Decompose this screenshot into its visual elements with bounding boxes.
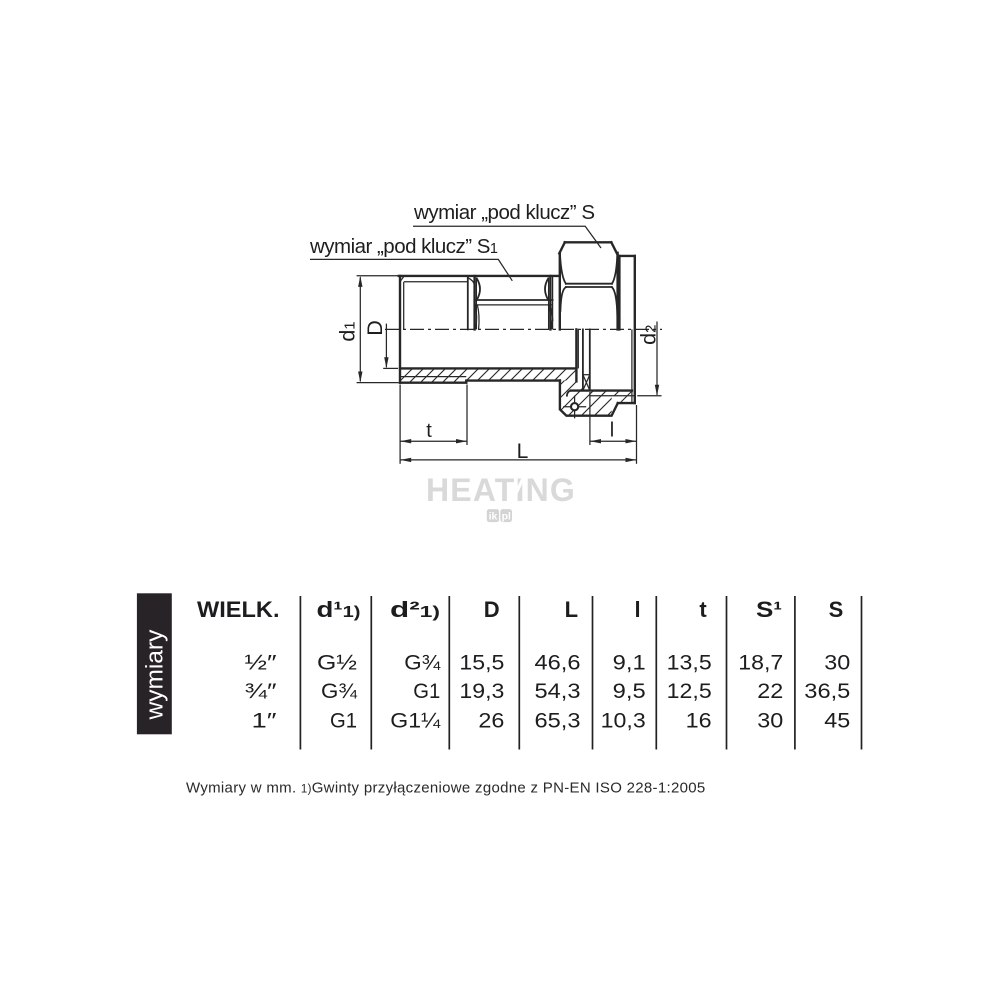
svg-text:G¾: G¾ — [321, 680, 358, 703]
svg-text:¾″: ¾″ — [245, 680, 278, 703]
svg-text:pl: pl — [502, 510, 511, 522]
svg-text:46,6: 46,6 — [535, 651, 581, 674]
svg-text:Wymiary w mm. 1)Gwinty przyłąc: Wymiary w mm. 1)Gwinty przyłączeniowe zg… — [186, 780, 706, 797]
svg-text:10,3: 10,3 — [601, 709, 646, 732]
svg-text:G1¼: G1¼ — [390, 709, 441, 732]
svg-text:HEATING: HEATING — [426, 472, 576, 508]
svg-text:18,7: 18,7 — [738, 651, 783, 674]
svg-text:G½: G½ — [317, 651, 357, 674]
svg-text:l: l — [634, 597, 640, 622]
svg-text:l: l — [610, 420, 614, 442]
svg-text:S: S — [829, 597, 844, 622]
svg-text:wymiar „pod klucz” S1: wymiar „pod klucz” S1 — [309, 235, 498, 258]
svg-text:22: 22 — [757, 680, 783, 703]
svg-text:G¾: G¾ — [404, 651, 441, 674]
svg-text:54,3: 54,3 — [535, 680, 581, 703]
svg-text:wymiary: wymiary — [141, 629, 168, 721]
svg-text:9,5: 9,5 — [613, 680, 646, 703]
svg-text:G1: G1 — [330, 709, 357, 732]
svg-text:wymiar „pod klucz” S: wymiar „pod klucz” S — [413, 201, 595, 224]
svg-text:65,3: 65,3 — [535, 709, 581, 732]
svg-text:16: 16 — [686, 709, 712, 732]
svg-text:WIELK.: WIELK. — [197, 597, 280, 622]
svg-text:30: 30 — [824, 651, 850, 674]
svg-text:S¹: S¹ — [756, 597, 782, 622]
svg-text:19,3: 19,3 — [459, 680, 504, 703]
svg-text:t: t — [699, 597, 707, 622]
svg-text:D: D — [484, 597, 500, 622]
svg-text:½″: ½″ — [245, 651, 278, 674]
svg-text:26: 26 — [478, 709, 504, 732]
svg-text:45: 45 — [824, 709, 850, 732]
svg-text:1″: 1″ — [252, 709, 278, 732]
svg-text:36,5: 36,5 — [804, 680, 850, 703]
svg-text:L: L — [565, 597, 578, 622]
svg-text:30: 30 — [757, 709, 783, 732]
svg-text:t: t — [426, 420, 432, 442]
svg-text:12,5: 12,5 — [667, 680, 712, 703]
svg-text:9,1: 9,1 — [613, 651, 646, 674]
svg-text:ik: ik — [489, 510, 498, 522]
svg-text:G1: G1 — [413, 680, 440, 703]
svg-text:13,5: 13,5 — [667, 651, 712, 674]
svg-text:D: D — [363, 320, 387, 336]
svg-text:15,5: 15,5 — [459, 651, 504, 674]
